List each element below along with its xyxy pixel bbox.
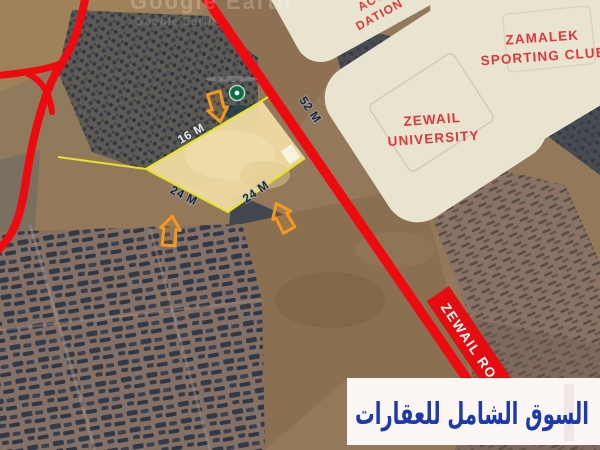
faint-place-label (206, 76, 258, 82)
brand-text: السوق الشامل للعقارات (355, 397, 589, 432)
map-canvas: ZEWAIL ROAD 16 M 24 M 24 M 52 M ZAMALEK … (0, 0, 600, 450)
google-earth-watermark: Google Earth (130, 0, 292, 14)
satellite-map-screenshot: ZEWAIL ROAD 16 M 24 M 24 M 52 M ZAMALEK … (0, 0, 600, 450)
google-earth-watermark-small: Google Earth (135, 16, 216, 28)
footer-strip: السوق الشامل للعقارات (347, 378, 600, 445)
